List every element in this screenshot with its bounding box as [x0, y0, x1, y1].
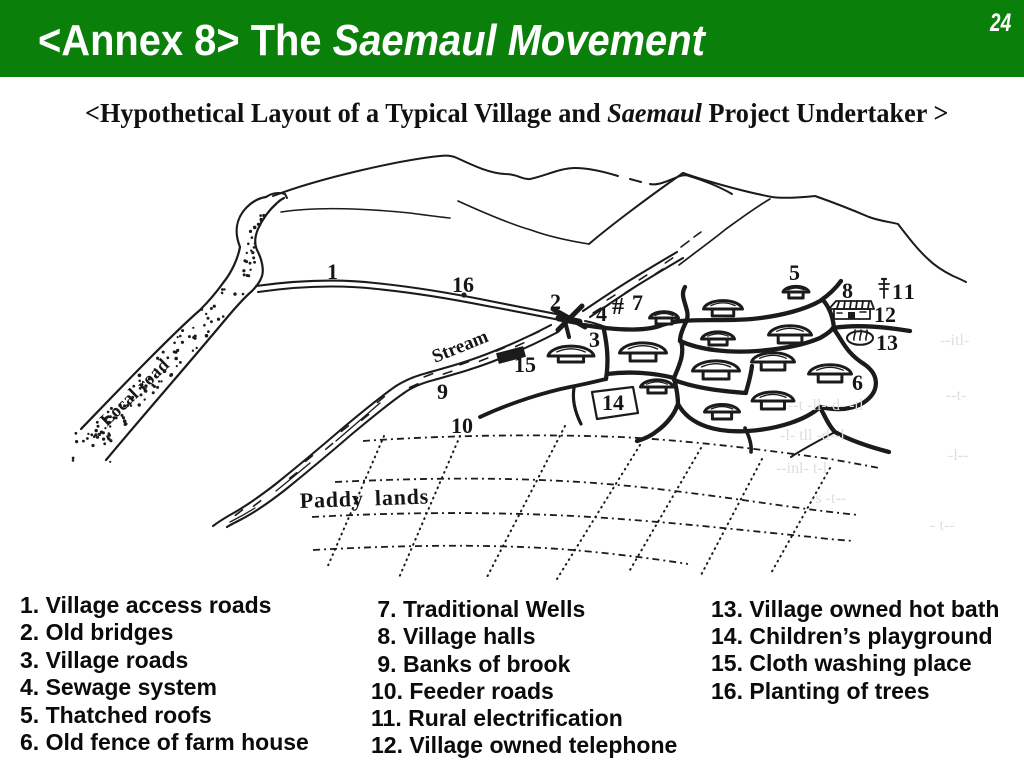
svg-text:16: 16	[452, 272, 474, 297]
svg-text:Stream: Stream	[429, 326, 491, 368]
svg-text:Local road: Local road	[96, 354, 173, 430]
svg-text:-l- tll -d--l: -l- tll -d--l	[780, 427, 845, 444]
svg-text:2: 2	[550, 289, 561, 314]
svg-text:8: 8	[842, 278, 853, 303]
svg-text:Paddy lands: Paddy lands	[299, 483, 429, 512]
svg-text:--inl- t-l: --inl- t-l	[776, 460, 828, 477]
svg-text:1: 1	[327, 259, 338, 284]
svg-text:10: 10	[451, 413, 473, 438]
svg-text:--t -ll--d- -tl: --t -ll--d- -tl	[788, 397, 864, 414]
svg-text:4: 4	[596, 301, 607, 326]
svg-text:5: 5	[789, 260, 800, 285]
svg-text:--t-: --t-	[946, 387, 966, 404]
svg-text:#: #	[612, 294, 624, 320]
svg-text:--itl-: --itl-	[940, 332, 969, 349]
svg-text:7: 7	[632, 290, 643, 315]
svg-text:13: 13	[876, 330, 898, 355]
svg-text:12: 12	[874, 302, 896, 327]
svg-text:- t--: - t--	[930, 517, 954, 534]
svg-text:-l--: -l--	[948, 447, 968, 464]
svg-text:15: 15	[514, 352, 536, 377]
svg-text:11: 11	[892, 279, 917, 304]
svg-text:9: 9	[437, 379, 448, 404]
svg-text:14: 14	[602, 390, 624, 415]
svg-text:6: 6	[852, 370, 863, 395]
svg-text:3: 3	[589, 327, 600, 352]
svg-text:-s -t--: -s -t--	[810, 490, 846, 507]
